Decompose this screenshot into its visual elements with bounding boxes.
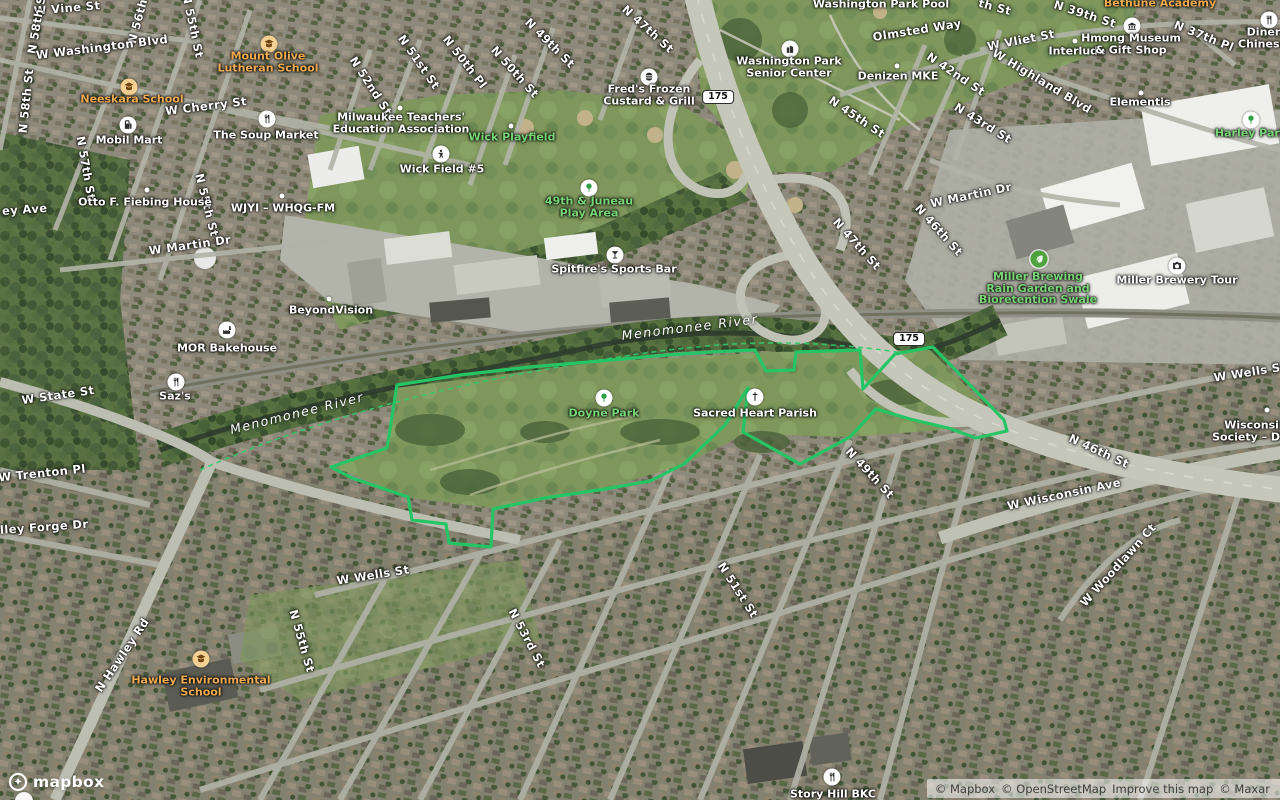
story-hill-bkc-icon <box>824 769 841 786</box>
water-label: Menomonee River <box>621 311 759 343</box>
street-label: W Trenton Pl <box>0 461 86 484</box>
street-label: N 49th St <box>843 445 897 502</box>
miller-brewing-rain-garden-label: Miller BrewingRain Garden andBioretentio… <box>979 271 1097 306</box>
street-label: N 51st St <box>395 32 443 92</box>
49th-and-juneau-play-area-label: 49th & JuneauPlay Area <box>545 196 633 219</box>
sacred-heart-parish-label: Sacred Heart Parish <box>693 407 817 419</box>
map-labels-layer: W Vine StN 58th StN 58th StN 56th StN 55… <box>0 0 1280 800</box>
mor-bakehouse-label: MOR Bakehouse <box>177 342 277 354</box>
hawley-environmental-school-icon <box>193 651 210 668</box>
street-label: N 49th St <box>522 15 578 71</box>
wjyi-whqg-fm-dot-icon <box>280 194 285 199</box>
street-label: W State St <box>21 383 96 407</box>
freds-frozen-custard-grill-label: Fred's FrozenCustard & Grill <box>603 84 694 107</box>
washington-park-senior-center-label: Washington ParkSenior Center <box>736 56 841 79</box>
street-label: N 58th St <box>16 68 37 134</box>
spitfires-sports-bar-label: Spitfire's Sports Bar <box>551 263 676 275</box>
miller-brewery-tour-icon <box>1169 258 1186 275</box>
attribution-improve-link[interactable]: Improve this map <box>1112 782 1213 796</box>
otto-f-fiebing-house-dot-icon <box>145 188 150 193</box>
mapbox-logo-icon <box>8 772 28 792</box>
wick-playfield-dot-icon <box>509 124 514 129</box>
hmong-museum-gift-shop-label: Hmong Museum& Gift Shop <box>1081 33 1181 56</box>
mapbox-logo[interactable]: mapbox <box>8 772 104 792</box>
street-label: lley Forge Dr <box>0 517 89 537</box>
diners-chinese-label: DinerslaChinese Cu <box>1238 27 1280 50</box>
map-canvas[interactable]: W Vine StN 58th StN 58th StN 56th StN 55… <box>0 0 1280 800</box>
street-label: Olmsted Way <box>872 16 963 44</box>
bethune-academy-label: Bethune Academy <box>1104 0 1216 9</box>
attribution-maxar[interactable]: © Maxar <box>1219 782 1270 796</box>
elementis-label: Elementis <box>1109 96 1170 108</box>
hawley-environmental-school-label: Hawley EnvironmentalSchool <box>131 675 270 698</box>
neeskara-school-label: Neeskara School <box>80 93 183 105</box>
mobil-mart-label: Mobil Mart <box>96 134 163 146</box>
denizen-mke-dot-icon <box>895 64 900 69</box>
washington-park-pool-label: Washington Park Pool <box>813 0 949 10</box>
sazs-label: Saz's <box>159 390 191 402</box>
street-label: W Washington Blvd <box>35 32 169 62</box>
wisconsin-historical-society-dot-icon <box>1265 408 1270 413</box>
street-label: N 53rd St <box>506 606 549 670</box>
mount-olive-lutheran-school-label: Mount OliveLutheran School <box>217 51 318 74</box>
miller-brewery-tour-label: Miller Brewery Tour <box>1116 274 1237 286</box>
street-label: th St <box>977 0 1013 18</box>
attribution-bar: © Mapbox © OpenStreetMap Improve this ma… <box>927 779 1280 798</box>
the-soup-market-label: The Soup Market <box>213 129 318 141</box>
street-label: N 43rd St <box>952 100 1014 146</box>
street-label: W Wells St <box>336 562 411 587</box>
street-label: W Martin Dr <box>148 232 232 257</box>
wick-field-5-icon <box>433 146 450 163</box>
street-label: N 55th St <box>179 0 206 59</box>
doyne-park-icon <box>596 390 613 407</box>
miller-brewing-rain-garden-icon <box>1031 251 1048 268</box>
story-hill-bkc-label: Story Hill BKC <box>790 788 876 800</box>
mobil-mart-icon <box>120 117 137 134</box>
street-label: N 52nd St <box>347 54 395 118</box>
street-label: W Wells St <box>1213 359 1280 384</box>
street-label: N 55th St <box>286 608 317 674</box>
wisconsin-historical-society-label: Wisconsin HSociety – Dalton <box>1212 420 1280 443</box>
street-label: N 46th St <box>912 201 966 258</box>
harley-park-label: Harley Park <box>1215 127 1280 139</box>
street-label: W Martin Dr <box>929 180 1013 211</box>
water-label: Menomonee River <box>228 389 365 437</box>
attribution-openstreetmap[interactable]: © OpenStreetMap <box>1001 782 1106 796</box>
street-label: W Woodlawn Ct <box>1077 521 1159 610</box>
highway-shield: 175 <box>893 332 925 346</box>
doyne-park-label: Doyne Park <box>569 407 640 419</box>
street-label: N 47th St <box>619 2 676 56</box>
milwaukee-teachers-education-association-label: Milwaukee Teachers'Education Association <box>333 112 470 135</box>
street-label: N 46th St <box>1067 431 1132 471</box>
beyondvision-dot-icon <box>327 297 332 302</box>
street-label: N 45th St <box>826 93 887 141</box>
street-label: N 47th St <box>830 215 884 272</box>
sacred-heart-parish-icon <box>747 389 764 406</box>
attribution-mapbox[interactable]: © Mapbox <box>935 782 995 796</box>
street-label: N 50th Pl <box>440 33 490 91</box>
mor-bakehouse-icon <box>219 322 236 339</box>
street-label: W Wisconsin Ave <box>1006 475 1122 513</box>
spitfires-sports-bar-icon <box>607 247 624 264</box>
the-soup-market-icon <box>259 111 276 128</box>
wick-field-5-label: Wick Field #5 <box>400 163 485 175</box>
highway-shield: 175 <box>702 90 734 104</box>
street-label: N 37th Pl <box>1172 18 1236 55</box>
street-label: N 50th St <box>488 43 542 100</box>
street-label: ey Ave <box>2 201 48 218</box>
denizen-mke-label: Denizen MKE <box>858 70 939 82</box>
mapbox-logo-text: mapbox <box>33 773 104 791</box>
wjyi-whqg-fm-label: WJYI – WHQG-FM <box>231 202 335 214</box>
otto-f-fiebing-house-label: Otto F. Fiebing House <box>78 196 212 208</box>
wick-playfield-label: Wick Playfield <box>469 131 556 143</box>
street-label: N 51st St <box>715 560 761 621</box>
sazs-icon <box>168 374 185 391</box>
beyondvision-label: BeyondVision <box>289 304 373 316</box>
interlude-dot-icon <box>1073 39 1078 44</box>
